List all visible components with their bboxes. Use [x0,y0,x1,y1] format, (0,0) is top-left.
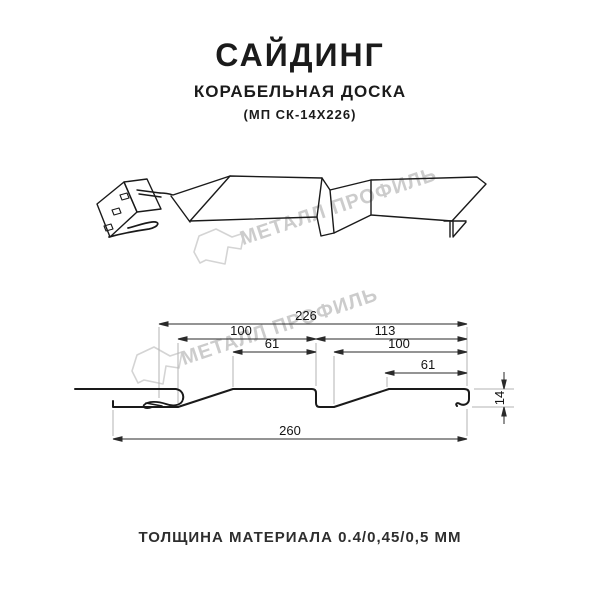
section-profile [75,389,469,408]
siding-perspective-drawing [85,160,505,255]
dim-board2-face-small: 61 [421,357,435,372]
thickness-note: ТОЛЩИНА МАТЕРИАЛА 0.4/0,45/0,5 ММ [0,529,600,546]
lock-curl [109,222,158,237]
middle-step [317,178,334,236]
mounting-strip [97,182,137,237]
dimension-lines [113,322,506,441]
board2-face [371,177,486,221]
product-subtitle: КОРАБЕЛЬНАЯ ДОСКА [0,82,600,102]
page-title: САЙДИНГ [0,38,600,73]
end-fold [444,221,466,237]
hem-fold [124,179,161,212]
dim-profile-depth: 14 [492,391,507,405]
dim-board1-width: 100 [230,323,252,338]
dim-board1-face: 61 [265,336,279,351]
nail-hole-icon [104,224,113,231]
dim-overall-width: 260 [279,423,301,438]
nail-hole-icon [120,193,129,200]
siding-section-drawing: 226 100 113 61 100 61 260 14 [60,295,540,460]
header: САЙДИНГ КОРАБЕЛЬНАЯ ДОСКА (МП СК-14Х226) [0,38,600,122]
product-model: (МП СК-14Х226) [0,107,600,122]
dim-coverage-width: 226 [295,308,317,323]
extension-lines [113,327,514,436]
nail-hole-icon [112,208,121,215]
dim-board2-face: 100 [388,336,410,351]
